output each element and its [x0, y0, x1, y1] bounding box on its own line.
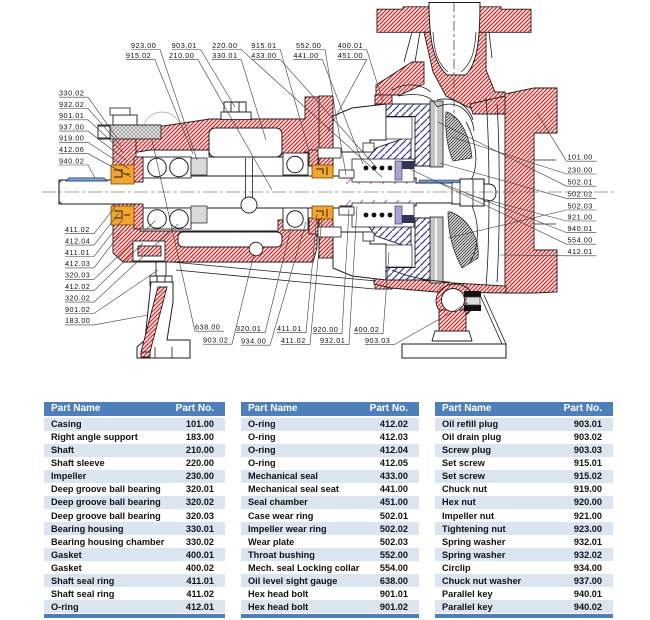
svg-text:412.02: 412.02	[65, 282, 90, 291]
svg-text:940.01: 940.01	[568, 224, 593, 233]
svg-text:411.01: 411.01	[65, 248, 90, 257]
svg-text:638.00: 638.00	[195, 323, 220, 332]
svg-text:451.00: 451.00	[338, 51, 363, 60]
svg-text:915.01: 915.01	[251, 41, 276, 50]
svg-text:210.00: 210.00	[169, 51, 194, 60]
svg-text:903.02: 903.02	[203, 336, 228, 345]
svg-text:400.02: 400.02	[354, 325, 379, 334]
svg-text:320.01: 320.01	[236, 324, 261, 333]
svg-text:411.02: 411.02	[65, 225, 90, 234]
svg-text:412.03: 412.03	[65, 259, 90, 268]
svg-text:320.03: 320.03	[65, 271, 90, 280]
svg-text:901.01: 901.01	[59, 111, 84, 120]
svg-text:412.06: 412.06	[59, 145, 84, 154]
svg-text:411.01: 411.01	[277, 324, 302, 333]
svg-text:220.00: 220.00	[212, 41, 237, 50]
svg-text:921.00: 921.00	[568, 212, 593, 221]
svg-text:915.02: 915.02	[126, 51, 151, 60]
svg-text:932.01: 932.01	[320, 336, 345, 345]
svg-text:903.03: 903.03	[365, 336, 390, 345]
svg-text:320.02: 320.02	[65, 293, 90, 302]
svg-text:441.00: 441.00	[293, 51, 318, 60]
svg-text:411.02: 411.02	[281, 336, 306, 345]
svg-text:937.00: 937.00	[59, 122, 84, 131]
svg-text:330.01: 330.01	[212, 51, 237, 60]
svg-text:901.02: 901.02	[65, 305, 90, 314]
svg-text:903.01: 903.01	[172, 41, 197, 50]
svg-text:940.02: 940.02	[59, 156, 84, 165]
svg-text:412.04: 412.04	[65, 236, 90, 245]
svg-text:230.00: 230.00	[568, 165, 593, 174]
svg-text:502.01: 502.01	[568, 178, 593, 187]
svg-text:433.00: 433.00	[251, 51, 276, 60]
svg-text:330.02: 330.02	[59, 89, 84, 98]
svg-text:923.00: 923.00	[131, 41, 156, 50]
svg-text:183.00: 183.00	[65, 316, 90, 325]
svg-text:920.00: 920.00	[313, 325, 338, 334]
svg-text:552.00: 552.00	[296, 41, 321, 50]
svg-text:400.01: 400.01	[338, 41, 363, 50]
svg-text:502.02: 502.02	[568, 190, 593, 199]
svg-text:412.01: 412.01	[568, 247, 593, 256]
svg-text:502.03: 502.03	[568, 201, 593, 210]
svg-text:101.00: 101.00	[568, 153, 593, 162]
svg-text:934.00: 934.00	[241, 337, 266, 346]
svg-text:554.00: 554.00	[568, 236, 593, 245]
svg-text:932.02: 932.02	[59, 100, 84, 109]
svg-text:919.00: 919.00	[59, 134, 84, 143]
